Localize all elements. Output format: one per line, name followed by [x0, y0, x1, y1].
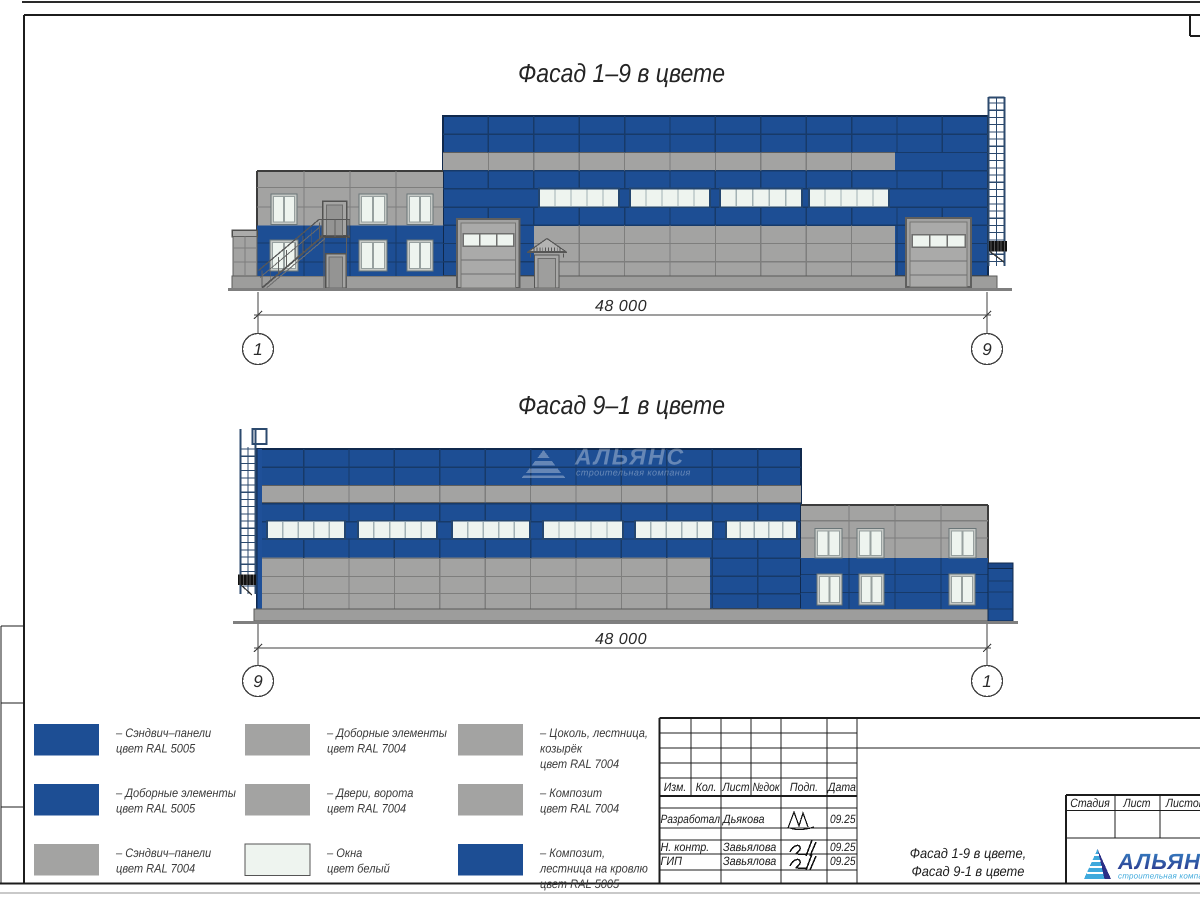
svg-text:Фасад 9-1 в цвете: Фасад 9-1 в цвете — [912, 863, 1025, 879]
svg-text:Стадия: Стадия — [1070, 796, 1110, 810]
svg-text:– Сэндвич–панели: – Сэндвич–панели — [115, 726, 211, 740]
svg-text:Лист: Лист — [1123, 796, 1151, 810]
svg-text:цвет RAL 7004: цвет RAL 7004 — [540, 802, 619, 816]
svg-text:– Цоколь, лестница,: – Цоколь, лестница, — [539, 726, 648, 740]
svg-text:9: 9 — [982, 340, 992, 359]
svg-text:– Доборные элементы: – Доборные элементы — [115, 786, 236, 800]
svg-text:цвет белый: цвет белый — [327, 862, 390, 876]
svg-text:Н. контр.: Н. контр. — [661, 840, 710, 854]
svg-text:цвет RAL 7004: цвет RAL 7004 — [327, 742, 406, 756]
svg-text:09.25: 09.25 — [830, 854, 856, 868]
svg-text:цвет RAL 7004: цвет RAL 7004 — [116, 862, 195, 876]
svg-text:– Сэндвич–панели: – Сэндвич–панели — [115, 846, 211, 860]
svg-text:цвет RAL 7004: цвет RAL 7004 — [327, 802, 406, 816]
svg-text:ГИП: ГИП — [661, 854, 683, 868]
svg-text:9: 9 — [253, 672, 263, 691]
svg-text:– Двери, ворота: – Двери, ворота — [326, 786, 413, 800]
svg-text:Дата: Дата — [826, 780, 856, 794]
svg-text:1: 1 — [982, 672, 991, 691]
svg-text:строительная компания: строительная компания — [576, 468, 691, 478]
svg-text:цвет RAL 7004: цвет RAL 7004 — [540, 757, 619, 771]
svg-text:цвет RAL 5005: цвет RAL 5005 — [116, 742, 195, 756]
svg-text:09.25: 09.25 — [830, 812, 856, 826]
svg-text:Завьялова: Завьялова — [723, 854, 777, 868]
svg-text:лестница на кровлю: лестница на кровлю — [539, 862, 648, 876]
svg-text:АЛЬЯНС: АЛЬЯНС — [1117, 849, 1200, 874]
svg-text:Фасад 1-9 в цвете,: Фасад 1-9 в цвете, — [910, 845, 1026, 861]
svg-text:Завьялова: Завьялова — [723, 840, 777, 854]
svg-text:Разработал: Разработал — [661, 812, 721, 826]
svg-text:Лист: Лист — [722, 780, 750, 794]
svg-text:козырёк: козырёк — [540, 742, 583, 756]
svg-text:Подп.: Подп. — [790, 780, 818, 794]
svg-text:№док: №док — [752, 780, 780, 794]
svg-text:цвет RAL 5005: цвет RAL 5005 — [540, 877, 619, 891]
svg-text:Кол.: Кол. — [696, 780, 717, 794]
svg-text:– Композит,: – Композит, — [539, 846, 605, 860]
svg-text:цвет RAL 5005: цвет RAL 5005 — [116, 802, 195, 816]
svg-text:Фасад 9–1 в цвете: Фасад 9–1 в цвете — [518, 390, 725, 420]
svg-text:Листов: Листов — [1165, 796, 1200, 810]
svg-text:строительная компания: строительная компания — [1118, 872, 1200, 881]
svg-text:– Окна: – Окна — [326, 846, 362, 860]
svg-text:1: 1 — [253, 340, 262, 359]
svg-text:09.25: 09.25 — [830, 840, 856, 854]
svg-text:Фасад 1–9 в цвете: Фасад 1–9 в цвете — [518, 58, 725, 88]
svg-text:48 000: 48 000 — [595, 631, 647, 648]
svg-text:АЛЬЯНС: АЛЬЯНС — [574, 444, 685, 470]
svg-text:48 000: 48 000 — [595, 298, 647, 315]
svg-text:– Доборные элементы: – Доборные элементы — [326, 726, 447, 740]
svg-text:– Композит: – Композит — [539, 786, 602, 800]
svg-text:Дьякова: Дьякова — [721, 812, 765, 826]
svg-text:Изм.: Изм. — [664, 780, 687, 794]
